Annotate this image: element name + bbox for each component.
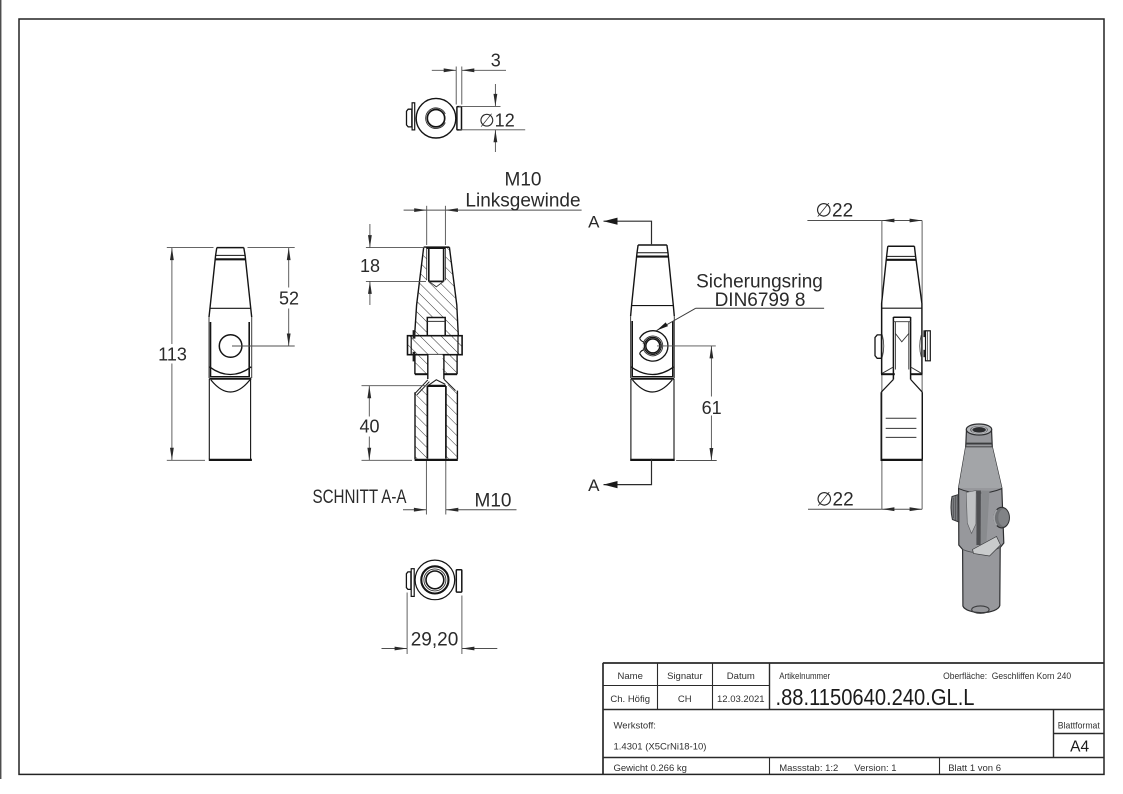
svg-text:Datum: Datum bbox=[727, 671, 755, 682]
svg-text:52: 52 bbox=[279, 289, 299, 309]
svg-text:Artikelnummer: Artikelnummer bbox=[779, 671, 830, 682]
svg-text:40: 40 bbox=[359, 417, 379, 437]
svg-text:3: 3 bbox=[491, 51, 501, 71]
svg-text:Linksgewinde: Linksgewinde bbox=[465, 190, 580, 211]
svg-text:Blattformat: Blattformat bbox=[1058, 720, 1100, 731]
svg-text:Ch. Höfig: Ch. Höfig bbox=[610, 694, 650, 705]
svg-text:29,20: 29,20 bbox=[411, 630, 459, 651]
svg-text:Name: Name bbox=[618, 671, 643, 682]
svg-text:Massstab: 1:2: Massstab: 1:2 bbox=[779, 763, 838, 774]
svg-text:Version: 1: Version: 1 bbox=[854, 763, 896, 774]
svg-text:1.4301 (X5CrNi18-10): 1.4301 (X5CrNi18-10) bbox=[614, 742, 707, 753]
svg-text:Gewicht 0.266 kg: Gewicht 0.266 kg bbox=[614, 763, 687, 774]
svg-text:CH: CH bbox=[678, 694, 692, 705]
svg-text:∅12: ∅12 bbox=[479, 111, 515, 131]
svg-text:A4: A4 bbox=[1070, 739, 1089, 756]
svg-text:Werkstoff:: Werkstoff: bbox=[614, 721, 656, 732]
svg-text:M10: M10 bbox=[505, 169, 542, 190]
svg-text:61: 61 bbox=[702, 398, 722, 418]
svg-text:A: A bbox=[588, 476, 600, 495]
svg-text:Signatur: Signatur bbox=[667, 671, 702, 682]
svg-text:12.03.2021: 12.03.2021 bbox=[717, 694, 765, 705]
svg-text:A: A bbox=[588, 213, 600, 232]
svg-text:∅22: ∅22 bbox=[816, 201, 854, 222]
svg-text:∅22: ∅22 bbox=[816, 490, 854, 511]
svg-text:Blatt 1 von 6: Blatt 1 von 6 bbox=[948, 763, 1001, 774]
svg-text:SCHNITT A-A: SCHNITT A-A bbox=[313, 487, 407, 508]
svg-text:113: 113 bbox=[158, 344, 187, 364]
svg-text:Oberfläche: Geschliffen Korn: Oberfläche: Geschliffen Korn 240 bbox=[943, 671, 1071, 682]
svg-text:18: 18 bbox=[360, 256, 380, 276]
svg-text:.88.1150640.240.GL.L: .88.1150640.240.GL.L bbox=[776, 684, 975, 710]
svg-text:M10: M10 bbox=[475, 491, 512, 512]
